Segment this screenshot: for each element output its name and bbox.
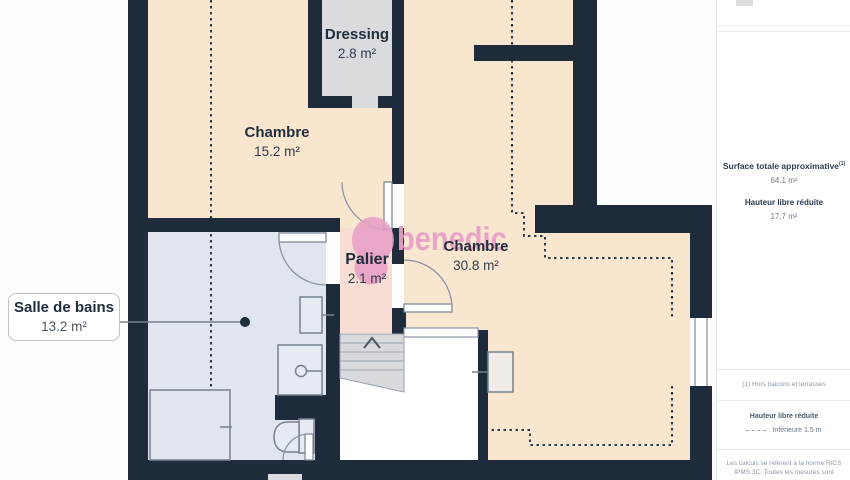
cabinet — [300, 297, 322, 333]
sidebar-top-element — [736, 0, 753, 6]
room-dressing — [320, 0, 392, 96]
floorplan-page: benedic Dressing 2.8 m² Chambre 15.2 m² … — [0, 0, 850, 480]
door-leaf — [404, 304, 452, 312]
divider — [717, 449, 850, 450]
room-area: 13.2 m² — [9, 319, 119, 334]
summary-section: Surface totale approximative(1) 64.1 m² … — [717, 161, 850, 221]
room-name: Salle de bains — [9, 299, 119, 316]
door-leaf — [279, 233, 326, 242]
divider — [717, 25, 850, 26]
surface-total-label: Surface totale approximative(1) — [717, 161, 850, 171]
disclaimer-line: IPMS 3C. Toutes les mesures sont — [720, 468, 848, 477]
reduced-height-value: 17.7 m² — [717, 212, 850, 221]
window — [690, 318, 712, 386]
disclaimer: Les calculs se réfèrent à la norme RICS … — [717, 459, 850, 477]
legend-row: Inférieure 1.5 m — [717, 427, 850, 434]
divider — [717, 369, 850, 370]
leader-dot — [240, 317, 250, 327]
divider — [717, 31, 850, 32]
legend-value: Inférieure 1.5 m — [772, 427, 821, 434]
disclaimer-line: Les calculs se réfèrent à la norme RICS — [720, 459, 848, 468]
dashed-line-icon — [746, 430, 766, 431]
divider — [717, 400, 850, 401]
door-leaf — [305, 434, 313, 460]
surface-total-value: 64.1 m² — [717, 176, 850, 185]
bottom-door-notch — [268, 474, 302, 480]
legend-section: Hauteur libre réduite Inférieure 1.5 m — [717, 413, 850, 434]
room-chambre-30-upper — [404, 0, 573, 233]
info-sidebar: Surface totale approximative(1) 64.1 m² … — [716, 0, 850, 480]
dressing-door-opening — [352, 96, 378, 108]
shower — [150, 390, 230, 460]
bathroom-callout: Salle de bains 13.2 m² — [8, 293, 120, 341]
reduced-height-label: Hauteur libre réduite — [717, 198, 850, 207]
stair-partition — [404, 328, 478, 337]
washbasin — [278, 345, 322, 395]
floorplan — [0, 0, 716, 480]
watermark-text: benedic — [397, 221, 507, 257]
footnote: (1) Hors balcons et terrasses — [717, 381, 850, 388]
legend-title: Hauteur libre réduite — [717, 413, 850, 420]
